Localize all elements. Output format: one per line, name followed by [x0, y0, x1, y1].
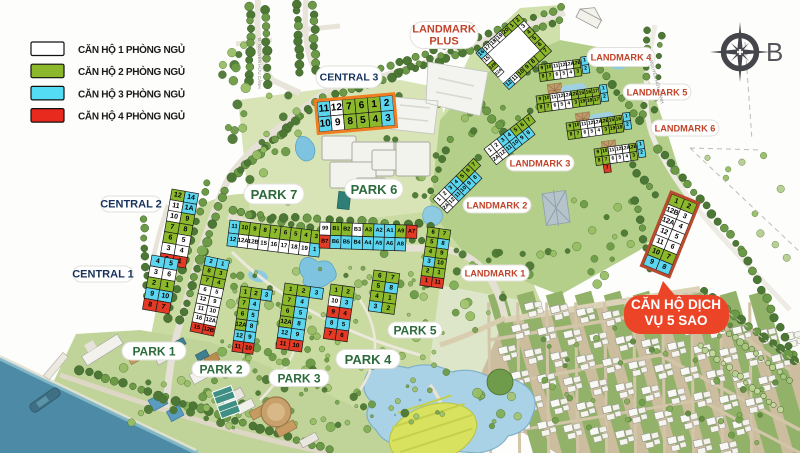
- svg-text:LANDMARK 1: LANDMARK 1: [465, 269, 526, 279]
- svg-text:B7: B7: [321, 239, 328, 245]
- svg-text:18: 18: [587, 97, 593, 104]
- svg-text:PARK 6: PARK 6: [351, 182, 398, 197]
- svg-text:16: 16: [615, 116, 621, 123]
- svg-text:A8: A8: [397, 241, 404, 247]
- svg-text:A3: A3: [365, 227, 372, 233]
- svg-text:B2: B2: [343, 226, 350, 232]
- svg-text:15: 15: [578, 90, 584, 97]
- svg-text:A4: A4: [364, 240, 372, 246]
- svg-text:CĂN HỘ 3 PHÒNG NGỦ: CĂN HỘ 3 PHÒNG NGỦ: [78, 87, 185, 100]
- svg-text:17: 17: [592, 88, 598, 95]
- svg-text:LANDMARK 2: LANDMARK 2: [467, 201, 528, 211]
- svg-text:CĂN HỘ 1 PHÒNG NGỦ: CĂN HỘ 1 PHÒNG NGỦ: [78, 43, 185, 56]
- svg-text:14: 14: [187, 194, 196, 202]
- svg-text:99: 99: [322, 226, 328, 232]
- svg-text:12: 12: [330, 102, 342, 114]
- svg-text:B5: B5: [343, 239, 350, 245]
- svg-text:A1: A1: [386, 228, 393, 234]
- svg-text:PARK 2: PARK 2: [199, 363, 242, 377]
- svg-text:10: 10: [544, 95, 550, 102]
- svg-text:PARK 4: PARK 4: [345, 352, 392, 367]
- svg-text:B1: B1: [332, 226, 339, 232]
- svg-text:19: 19: [580, 98, 586, 105]
- svg-text:10: 10: [170, 213, 179, 221]
- svg-text:CENTRAL 3: CENTRAL 3: [320, 72, 379, 84]
- svg-text:Đ. NGUYỄN HỮU CẢNH: Đ. NGUYỄN HỮU CẢNH: [257, 38, 263, 89]
- svg-text:18: 18: [617, 124, 623, 131]
- svg-text:VỤ 5 SAO: VỤ 5 SAO: [644, 313, 707, 328]
- svg-text:10: 10: [602, 148, 608, 155]
- svg-text:PARK 7: PARK 7: [251, 187, 298, 202]
- svg-text:A9: A9: [397, 228, 404, 234]
- svg-text:CĂN HỘ DỊCH: CĂN HỘ DỊCH: [631, 297, 721, 312]
- svg-text:A2: A2: [375, 227, 382, 233]
- svg-text:10: 10: [319, 118, 331, 130]
- svg-text:B4: B4: [353, 240, 361, 246]
- svg-text:CENTRAL 1: CENTRAL 1: [72, 269, 134, 281]
- svg-text:PLUS: PLUS: [429, 35, 458, 47]
- svg-text:B: B: [766, 37, 783, 67]
- svg-text:12: 12: [173, 191, 182, 199]
- svg-text:10: 10: [546, 64, 552, 71]
- svg-text:B6: B6: [332, 239, 339, 245]
- svg-text:11: 11: [172, 202, 181, 210]
- svg-text:LANDMARK: LANDMARK: [412, 23, 476, 35]
- svg-text:CENTRAL 2: CENTRAL 2: [100, 199, 162, 211]
- svg-text:A5: A5: [375, 240, 382, 246]
- svg-text:11: 11: [318, 103, 330, 115]
- svg-text:A6: A6: [386, 241, 393, 247]
- svg-text:10: 10: [161, 292, 170, 300]
- svg-text:PARK 1: PARK 1: [132, 345, 175, 359]
- svg-text:CĂN HỘ 4 PHÒNG NGỦ: CĂN HỘ 4 PHÒNG NGỦ: [78, 110, 185, 123]
- svg-text:PARK 5: PARK 5: [393, 324, 436, 338]
- svg-text:19: 19: [610, 125, 616, 132]
- svg-text:17: 17: [593, 96, 599, 103]
- svg-text:A7: A7: [408, 229, 415, 235]
- svg-text:16: 16: [585, 89, 591, 96]
- svg-text:15: 15: [608, 117, 614, 124]
- svg-text:B3: B3: [354, 227, 361, 233]
- svg-text:10: 10: [574, 122, 580, 129]
- svg-text:LANDMARK 6: LANDMARK 6: [655, 124, 716, 134]
- svg-text:PARK 3: PARK 3: [277, 372, 320, 386]
- svg-text:LANDMARK 4: LANDMARK 4: [591, 53, 653, 63]
- svg-text:LANDMARK 3: LANDMARK 3: [510, 159, 571, 169]
- svg-text:CĂN HỘ 2 PHÒNG NGỦ: CĂN HỘ 2 PHÒNG NGỦ: [78, 65, 185, 78]
